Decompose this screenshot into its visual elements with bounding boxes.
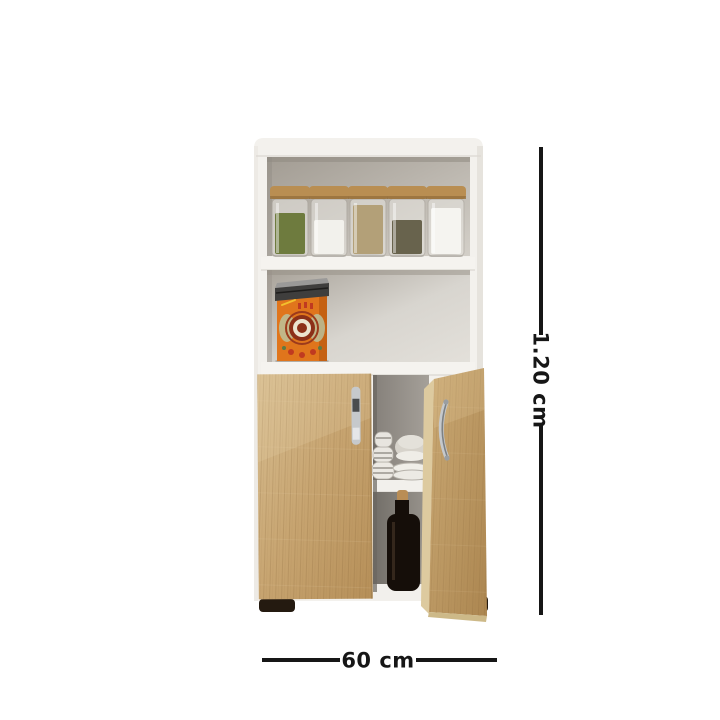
jar-green-herbs	[270, 186, 310, 258]
tin-mark	[304, 302, 307, 308]
big-bowl-rim	[396, 451, 426, 461]
compartment-top-left-shadow	[267, 157, 272, 256]
jar-content	[353, 205, 383, 254]
interior-left-wall	[373, 375, 377, 592]
compartment-top-shadow	[267, 157, 470, 162]
jar-lid-rim	[426, 196, 466, 199]
product-dimension-figure: 1.20 cm 60 cm	[0, 0, 720, 720]
tin-flower	[288, 349, 294, 355]
jar-highlight	[354, 203, 357, 253]
jar-content	[431, 208, 461, 254]
tin-leaf	[318, 346, 322, 350]
tin-mark	[310, 303, 313, 309]
jar-brown-grains	[348, 186, 388, 258]
dish-stack	[372, 432, 431, 480]
jar-highlight	[432, 203, 435, 253]
big-bowl-top	[398, 435, 424, 449]
left-door	[257, 374, 373, 600]
bottle-highlight	[392, 522, 395, 580]
shelf-compartment-middle	[267, 270, 470, 364]
height-dimension: 1.20 cm	[528, 147, 552, 615]
cabinet-foot-left	[259, 599, 295, 612]
cabinet	[254, 138, 488, 622]
left-door-handle	[351, 387, 360, 445]
shelf-board-2	[261, 362, 475, 375]
striped-bowl-middle	[373, 447, 393, 462]
bottle-body	[387, 514, 420, 591]
right-door	[421, 368, 487, 622]
tin-flower	[310, 349, 316, 355]
spice-tin	[275, 278, 329, 364]
handle-mount	[443, 399, 448, 404]
jar-highlight	[315, 203, 318, 253]
compartment-mid-shadow	[267, 270, 470, 275]
tin-flower	[299, 352, 305, 358]
striped-bowl-bottom	[372, 462, 394, 479]
figure-canvas: 1.20 cm 60 cm	[0, 0, 720, 720]
tin-mark	[298, 303, 301, 309]
height-label: 1.20 cm	[528, 332, 552, 429]
jar-lid-rim	[348, 196, 388, 199]
handle-bar-shade	[352, 399, 359, 412]
width-dimension: 60 cm	[262, 649, 497, 673]
jar-highlight	[276, 203, 279, 253]
striped-bowl-top	[375, 432, 392, 447]
jar-dark-seeds	[387, 186, 427, 258]
jar-lid-rim	[270, 196, 310, 199]
tin-emblem-core	[289, 315, 315, 341]
width-label: 60 cm	[341, 649, 414, 673]
jar-lid-rim	[309, 196, 349, 199]
jar-highlight	[393, 203, 396, 253]
shelf-compartment-top	[267, 157, 470, 258]
jar-white-sugar	[426, 186, 466, 258]
handle-mount	[444, 455, 449, 460]
jar-lid-rim	[387, 196, 427, 199]
jar-content	[314, 220, 344, 254]
handle-bar-glint	[353, 428, 360, 440]
jar-content	[392, 220, 422, 254]
jar-white-salt	[309, 186, 349, 258]
shelf-board-1	[261, 257, 475, 270]
carcass-left-shade	[254, 146, 258, 601]
jar-content	[275, 213, 305, 254]
compartment-mid-left-shadow	[267, 270, 272, 362]
tin-leaf	[282, 346, 286, 350]
